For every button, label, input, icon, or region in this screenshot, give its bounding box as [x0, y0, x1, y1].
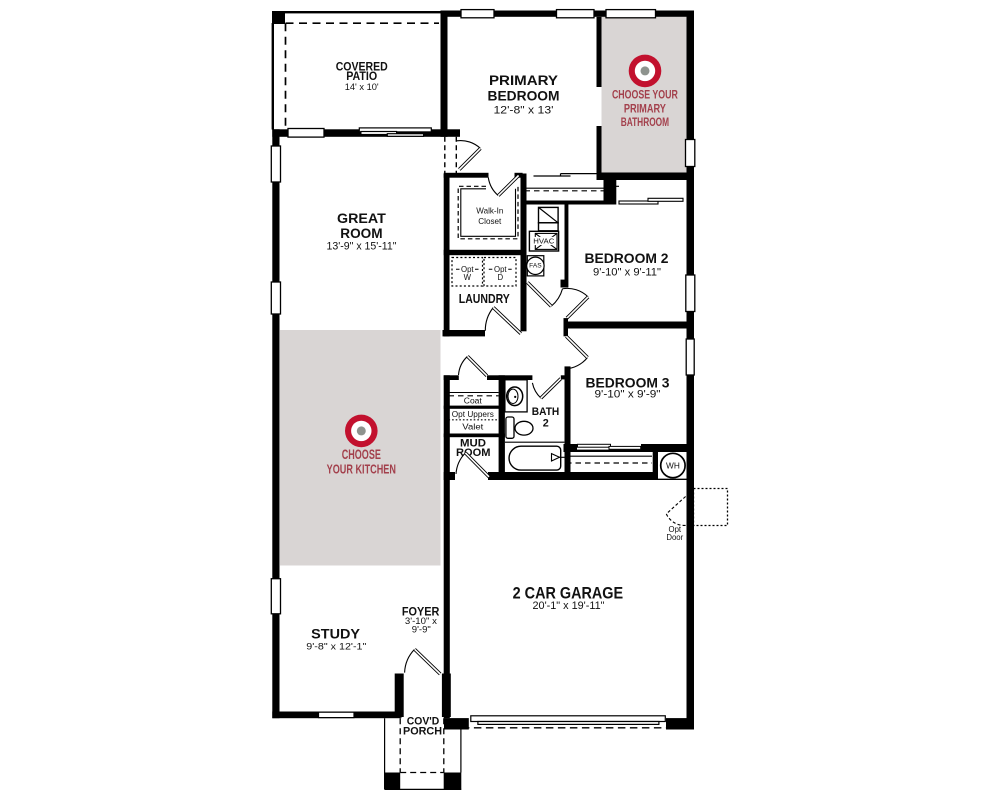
svg-text:Coat: Coat	[464, 396, 483, 405]
svg-text:LAUNDRY: LAUNDRY	[459, 291, 510, 306]
svg-text:HVAC: HVAC	[533, 237, 555, 246]
svg-text:BEDROOM 2: BEDROOM 2	[585, 251, 669, 266]
svg-text:PRIMARY: PRIMARY	[624, 102, 666, 116]
svg-text:WH: WH	[666, 461, 680, 471]
svg-text:Valet: Valet	[462, 422, 484, 431]
svg-text:9'-10" x 9'-11": 9'-10" x 9'-11"	[593, 266, 661, 278]
svg-text:PRIMARY: PRIMARY	[489, 73, 558, 88]
svg-text:W: W	[464, 273, 472, 282]
svg-text:STUDY: STUDY	[311, 626, 360, 641]
svg-text:9'-10" x 9'-9": 9'-10" x 9'-9"	[595, 388, 661, 400]
svg-text:CHOOSE YOUR: CHOOSE YOUR	[612, 88, 678, 102]
svg-text:BEDROOM: BEDROOM	[488, 88, 560, 103]
svg-text:ROOM: ROOM	[340, 226, 382, 241]
svg-text:CHOOSE: CHOOSE	[342, 447, 381, 462]
svg-text:BATH: BATH	[532, 406, 560, 418]
svg-text:ROOM: ROOM	[456, 447, 491, 459]
svg-text:Opt Uppers: Opt Uppers	[452, 410, 494, 419]
svg-text:GREAT: GREAT	[337, 211, 387, 226]
svg-text:20'-1" x 19'-11": 20'-1" x 19'-11"	[533, 600, 605, 612]
svg-text:9'-8" x 12'-1": 9'-8" x 12'-1"	[306, 641, 366, 652]
svg-text:14' x 10': 14' x 10'	[345, 82, 379, 93]
svg-text:13'-9" x 15'-11": 13'-9" x 15'-11"	[327, 240, 397, 252]
svg-text:D: D	[497, 273, 503, 282]
svg-text:Walk-In: Walk-In	[476, 206, 503, 216]
svg-text:YOUR KITCHEN: YOUR KITCHEN	[327, 462, 396, 477]
svg-text:Closet: Closet	[478, 216, 502, 226]
svg-text:PORCH: PORCH	[403, 725, 442, 737]
svg-text:BATHROOM: BATHROOM	[621, 115, 669, 129]
svg-text:2: 2	[543, 418, 549, 430]
svg-text:FAS: FAS	[529, 262, 542, 269]
svg-text:Door: Door	[666, 533, 683, 542]
svg-text:12'-8" x 13': 12'-8" x 13'	[494, 104, 554, 116]
svg-text:9'-9": 9'-9"	[412, 625, 431, 635]
